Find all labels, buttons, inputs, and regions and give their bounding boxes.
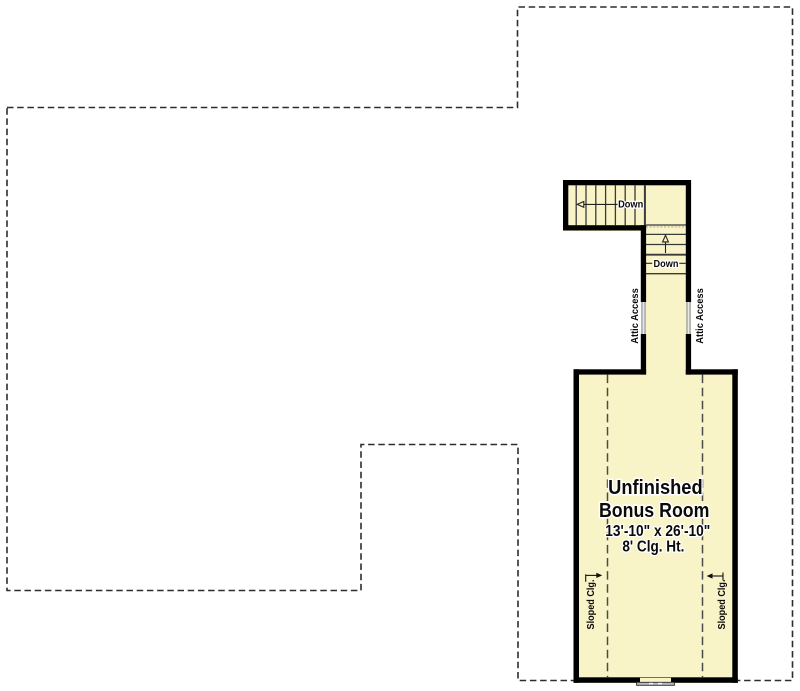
svg-text:Sloped Clg.: Sloped Clg.	[717, 579, 728, 629]
svg-text:Attic Access: Attic Access	[630, 288, 641, 344]
svg-text:Down: Down	[618, 200, 643, 211]
svg-text:Bonus Room: Bonus Room	[599, 499, 710, 522]
svg-text:Down: Down	[654, 259, 679, 270]
svg-text:8' Clg. Ht.: 8' Clg. Ht.	[622, 539, 684, 556]
svg-text:Unfinished: Unfinished	[608, 476, 703, 499]
svg-text:Attic Access: Attic Access	[695, 288, 706, 344]
svg-text:Sloped Clg.: Sloped Clg.	[586, 579, 597, 629]
